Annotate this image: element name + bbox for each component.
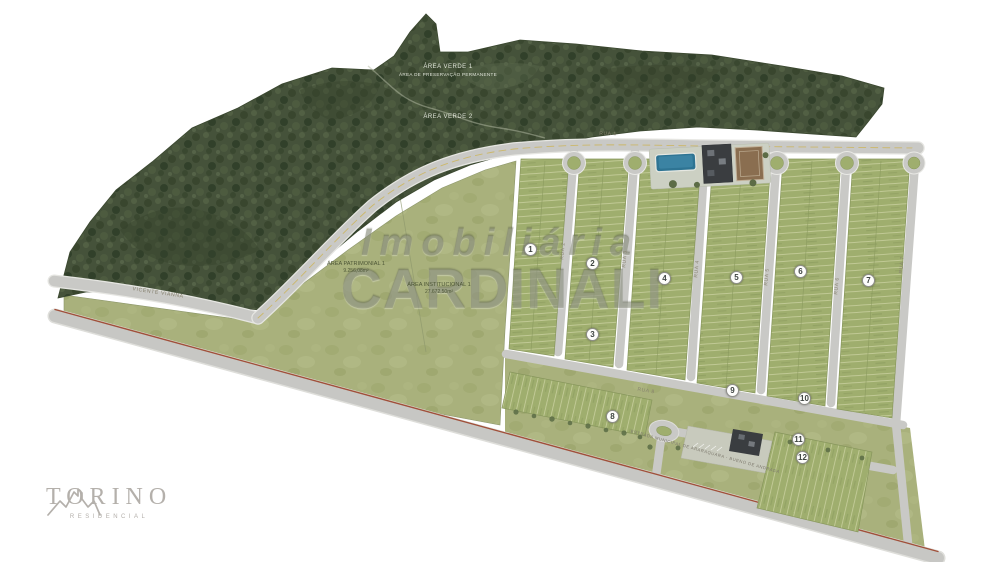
quadra-marker-7: 7 xyxy=(862,274,875,287)
area-verde-1-label: ÁREA VERDE 1 ÁREA DE PRESERVAÇÃO PERMANE… xyxy=(390,64,506,78)
turnaround-circle xyxy=(836,152,859,175)
clubhouse xyxy=(649,142,771,192)
torino-logo: TORINO RESIDENCIAL xyxy=(46,484,172,520)
quadra-marker-4: 4 xyxy=(658,272,671,285)
area-institucional-label: ÁREA INSTITUCIONAL 1 27.672,50m² xyxy=(390,282,488,296)
quadra-marker-9: 9 xyxy=(726,384,739,397)
rua1-label: RUA 1 xyxy=(588,131,628,138)
turnaround-circle xyxy=(624,152,647,175)
quadra-marker-6: 6 xyxy=(794,265,807,278)
quadra-marker-3: 3 xyxy=(586,328,599,341)
quadra-marker-2: 2 xyxy=(586,257,599,270)
turnaround-circle xyxy=(563,152,586,175)
area-institucional-size: 27.672,50m² xyxy=(390,289,488,296)
area-verde-2-label: ÁREA VERDE 2 xyxy=(398,114,498,122)
area-patrimonial-label: ÁREA PATRIMONIAL 1 9.256,08m² xyxy=(308,261,404,275)
torino-logo-icon xyxy=(46,484,102,520)
quadra-marker-10: 10 xyxy=(798,392,811,405)
area-institucional-title: ÁREA INSTITUCIONAL 1 xyxy=(390,282,488,289)
pool-water xyxy=(658,155,693,169)
quadra-marker-12: 12 xyxy=(796,451,809,464)
area-verde-2-title: ÁREA VERDE 2 xyxy=(398,114,498,122)
quadra-marker-1: 1 xyxy=(524,243,537,256)
clubhouse-building xyxy=(702,144,733,183)
quadra-marker-5: 5 xyxy=(730,271,743,284)
turnaround-circle xyxy=(903,152,925,174)
quadra-marker-8: 8 xyxy=(606,410,619,423)
masterplan-canvas: Imobiliária CARDINALI ÁREA VERDE 1 ÁREA … xyxy=(0,0,1000,562)
area-patrimonial-title: ÁREA PATRIMONIAL 1 xyxy=(308,261,404,268)
area-verde-1-subtitle: ÁREA DE PRESERVAÇÃO PERMANENTE xyxy=(390,72,506,78)
site-plan-svg xyxy=(0,0,1000,562)
area-patrimonial-size: 9.256,08m² xyxy=(308,268,404,275)
quadra-marker-11: 11 xyxy=(792,433,805,446)
area-verde-1-title: ÁREA VERDE 1 xyxy=(390,64,506,72)
